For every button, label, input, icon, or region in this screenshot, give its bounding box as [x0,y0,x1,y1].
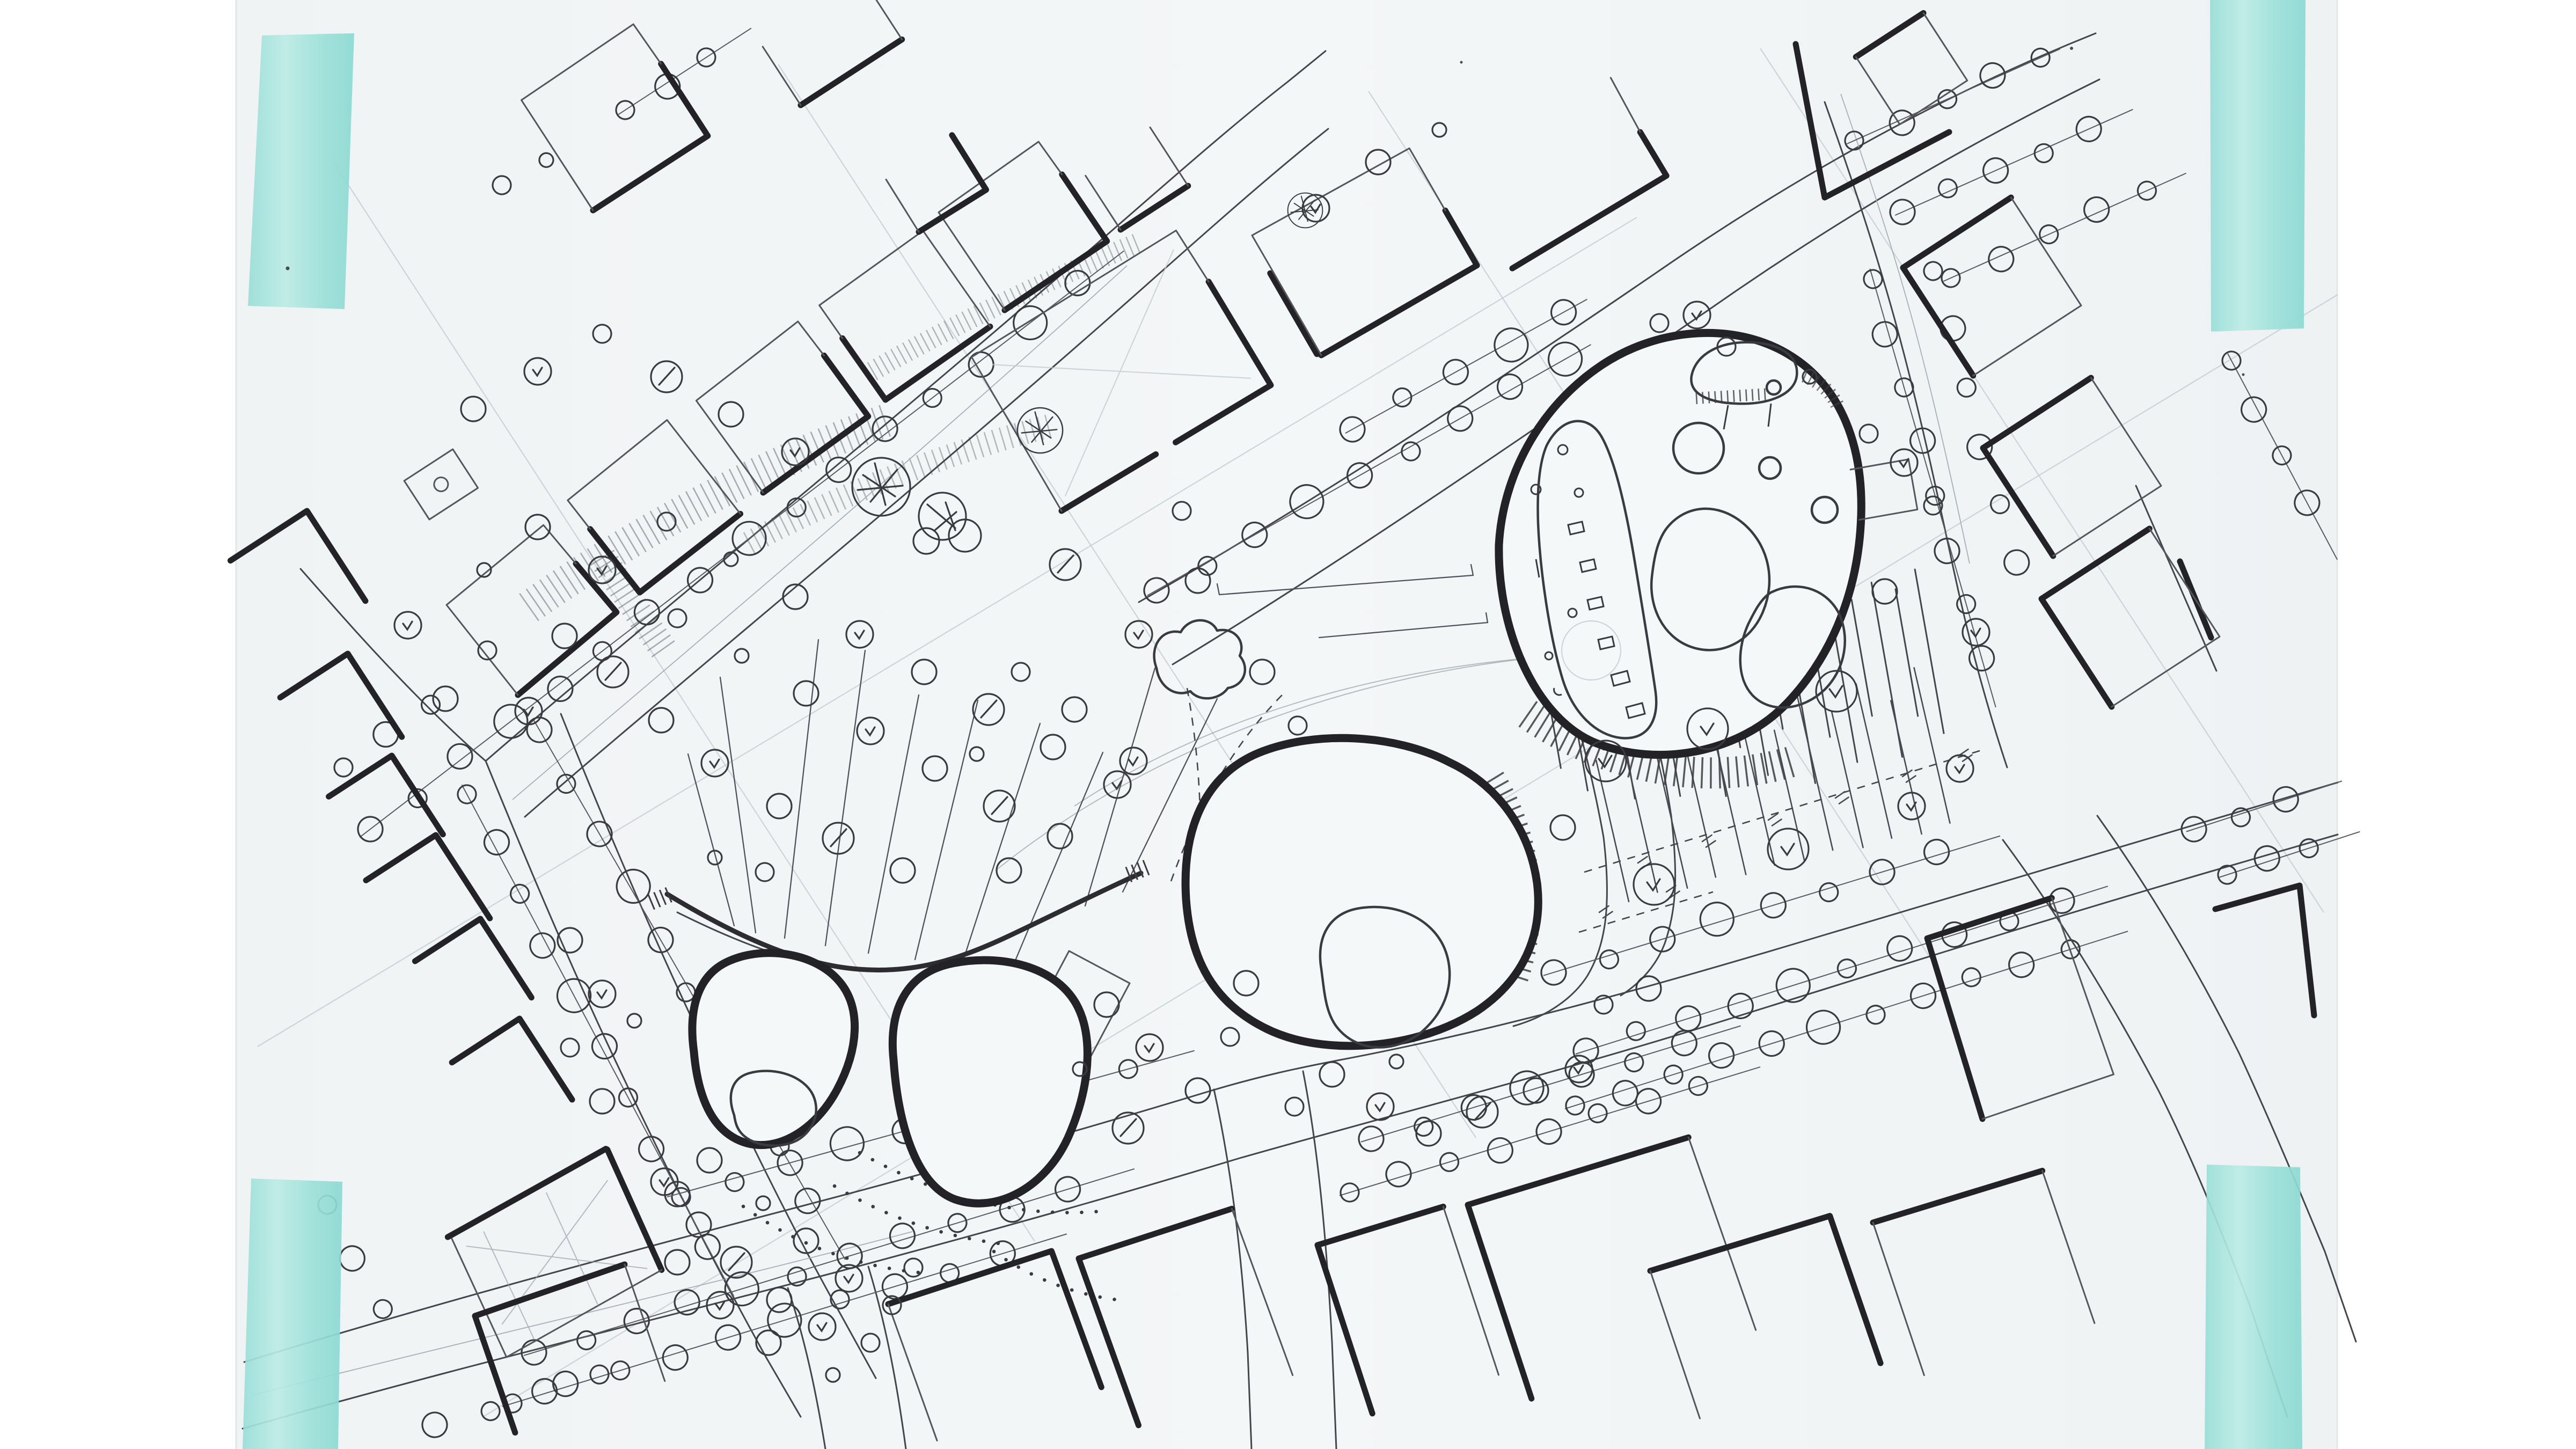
tape-bottom-left [243,1179,342,1449]
scanned-sheet: scanned hand-drawn architectural site pl… [0,0,2576,1449]
tape-bottom-right [2205,1165,2302,1449]
tape-top-right [2210,0,2306,332]
site-plan-sketch: scanned hand-drawn architectural site pl… [0,0,2576,1449]
central-pavilion-outline [1185,738,1538,1046]
central-pavilion [1185,738,1538,1047]
tape-top-left [248,33,354,309]
